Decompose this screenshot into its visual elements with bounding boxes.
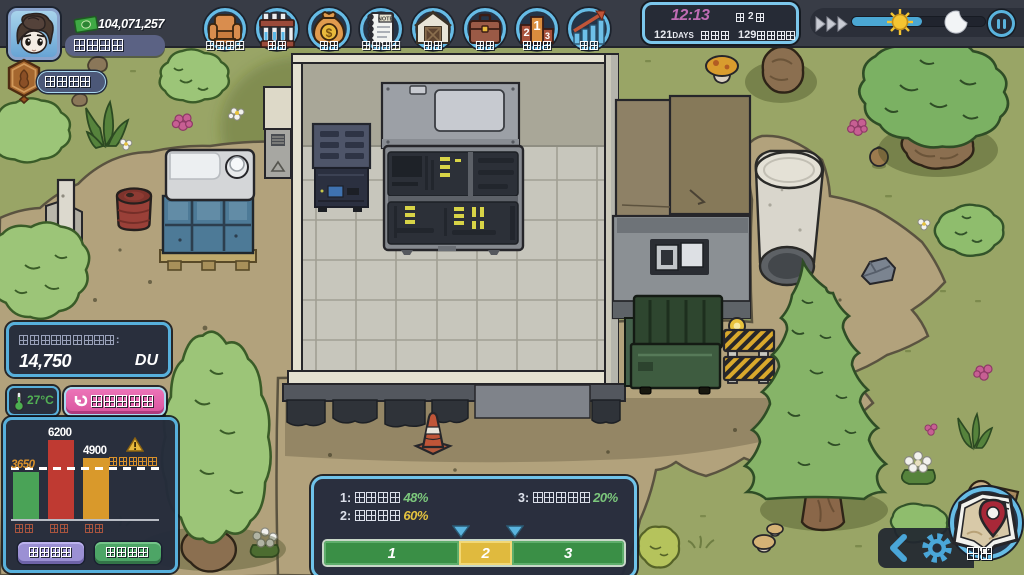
svg-text:3: 3 <box>545 31 550 41</box>
svg-text:2: 2 <box>523 27 529 39</box>
svg-text:NOTE: NOTE <box>378 17 394 23</box>
svg-text:1: 1 <box>533 18 540 33</box>
svg-text:$: $ <box>326 26 333 40</box>
